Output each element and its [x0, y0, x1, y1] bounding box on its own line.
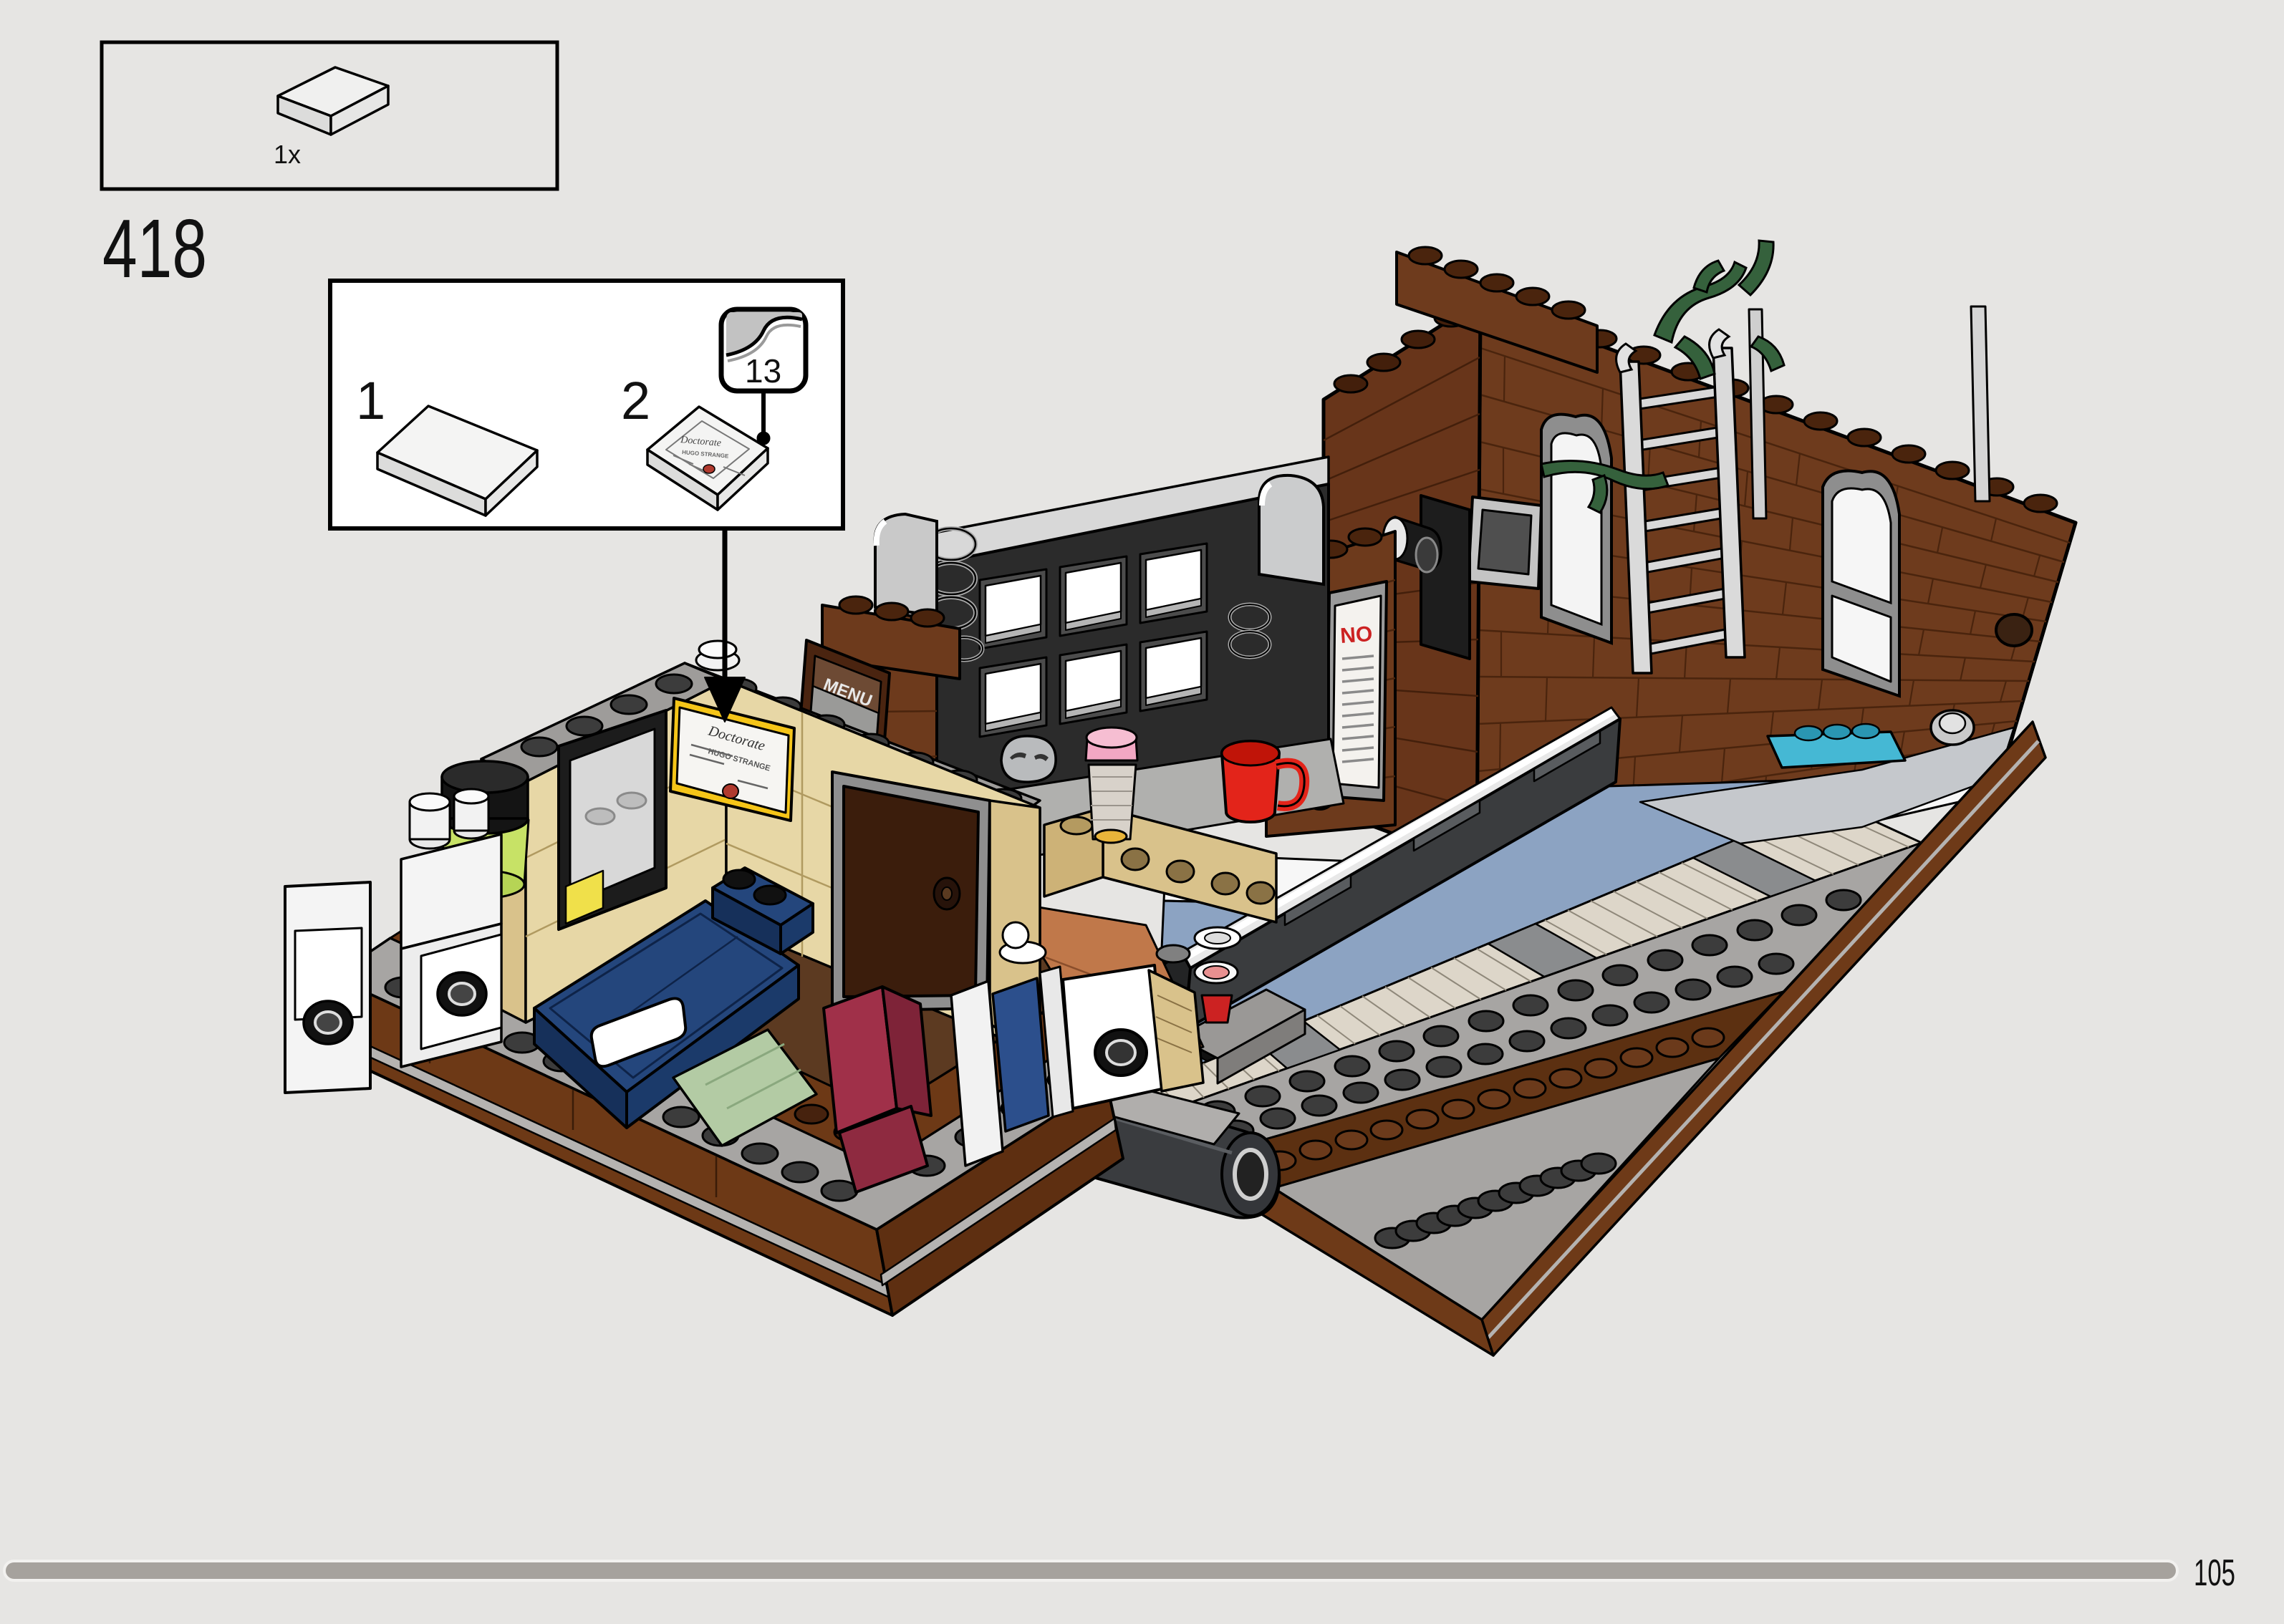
svg-text:1x: 1x: [274, 140, 301, 169]
svg-text:NO: NO: [1339, 622, 1373, 648]
svg-text:105: 105: [2194, 1552, 2235, 1594]
svg-text:2: 2: [621, 371, 650, 430]
svg-text:418: 418: [102, 202, 207, 295]
svg-text:13: 13: [745, 352, 781, 390]
svg-text:1: 1: [356, 371, 385, 430]
